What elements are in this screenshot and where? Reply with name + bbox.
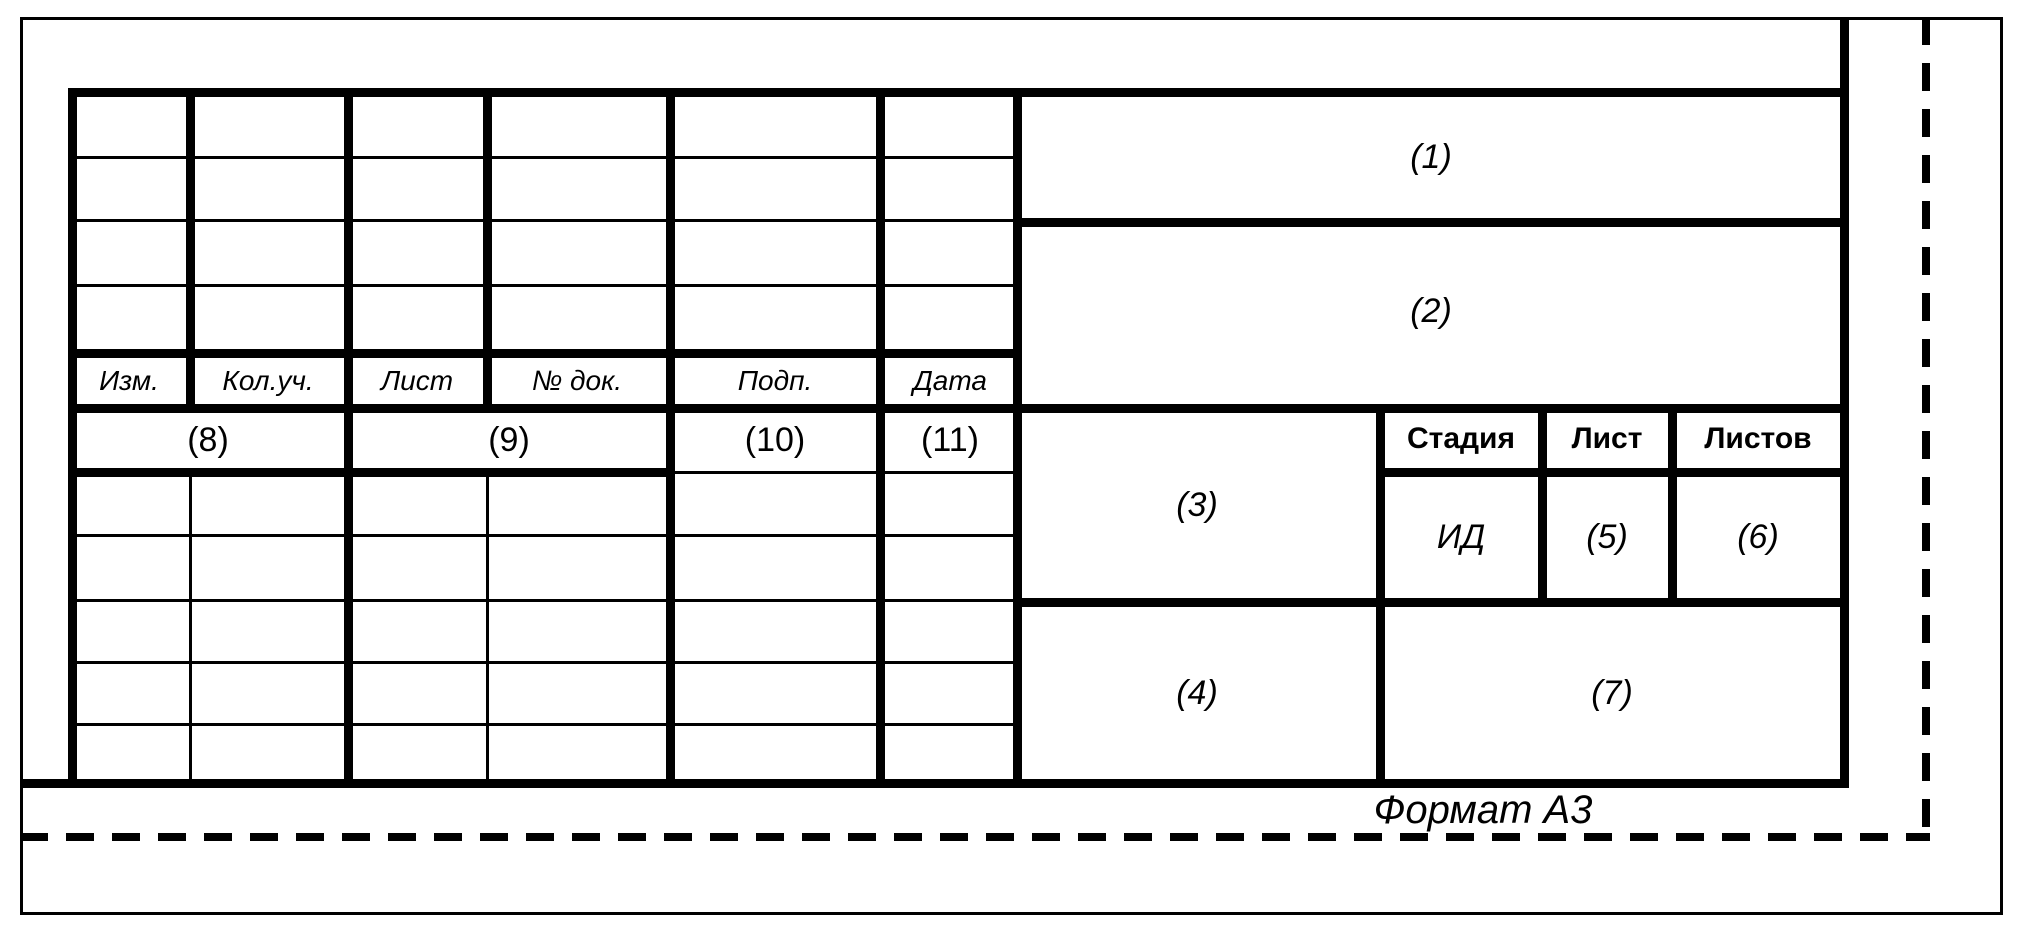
field-6-ref: (6): [1737, 520, 1779, 554]
rev-header-data: Дата: [913, 367, 987, 395]
rev-header-izm: Изм.: [99, 367, 159, 395]
grid-line: [1013, 598, 1849, 607]
rev-header-podp: Подп.: [738, 367, 813, 395]
field-7-ref: (7): [1591, 676, 1633, 710]
rev-header-nodok: № док.: [532, 367, 622, 395]
field-10-ref: (10): [745, 423, 805, 457]
grid-line: [1376, 404, 1385, 788]
grid-line: [68, 468, 675, 477]
grid-line: [68, 534, 1022, 537]
format-label: Формат А3: [1374, 790, 1593, 830]
stage-header: Стадия: [1407, 424, 1515, 454]
sheets-total-header: Листов: [1704, 424, 1811, 454]
grid-line: [1668, 404, 1677, 607]
grid-line: [675, 471, 1022, 474]
rev-header-list: Лист: [381, 367, 453, 395]
grid-line: [68, 88, 1849, 97]
grid-line: [1013, 88, 1022, 788]
grid-line: [486, 468, 489, 779]
grid-line: [1538, 404, 1547, 607]
grid-line: [1013, 218, 1849, 227]
drawing-sheet: Изм. Кол.уч. Лист № док. Подп. Дата (8) …: [0, 0, 2022, 933]
grid-line: [666, 88, 675, 788]
grid-line: [68, 88, 77, 788]
sheet-header: Лист: [1572, 424, 1643, 454]
grid-line: [189, 468, 192, 779]
field-8-ref: (8): [187, 423, 229, 457]
grid-line: [68, 219, 1022, 222]
grid-line: [68, 284, 1022, 287]
grid-line: [186, 88, 195, 413]
grid-line: [68, 349, 1022, 358]
field-1-ref: (1): [1410, 140, 1452, 174]
field-2-ref: (2): [1410, 294, 1452, 328]
grid-line: [68, 156, 1022, 159]
field-9-ref: (9): [488, 423, 530, 457]
grid-line: [1376, 468, 1849, 477]
stage-value: ИД: [1437, 520, 1485, 554]
grid-line: [68, 661, 1022, 664]
title-block-bottom-line: [20, 779, 1849, 788]
field-3-ref: (3): [1176, 488, 1218, 522]
grid-line: [68, 599, 1022, 602]
grid-line: [876, 88, 885, 788]
grid-line: [68, 404, 1849, 413]
frame-right-line: [1840, 17, 1849, 788]
field-4-ref: (4): [1176, 676, 1218, 710]
grid-line: [68, 723, 1022, 726]
fold-line-vertical: [1922, 17, 1930, 841]
field-11-ref: (11): [921, 423, 979, 457]
field-5-ref: (5): [1586, 520, 1628, 554]
fold-line-horizontal: [20, 833, 1930, 841]
grid-line: [344, 88, 353, 788]
grid-line: [483, 88, 492, 413]
rev-header-koluch: Кол.уч.: [222, 367, 313, 395]
